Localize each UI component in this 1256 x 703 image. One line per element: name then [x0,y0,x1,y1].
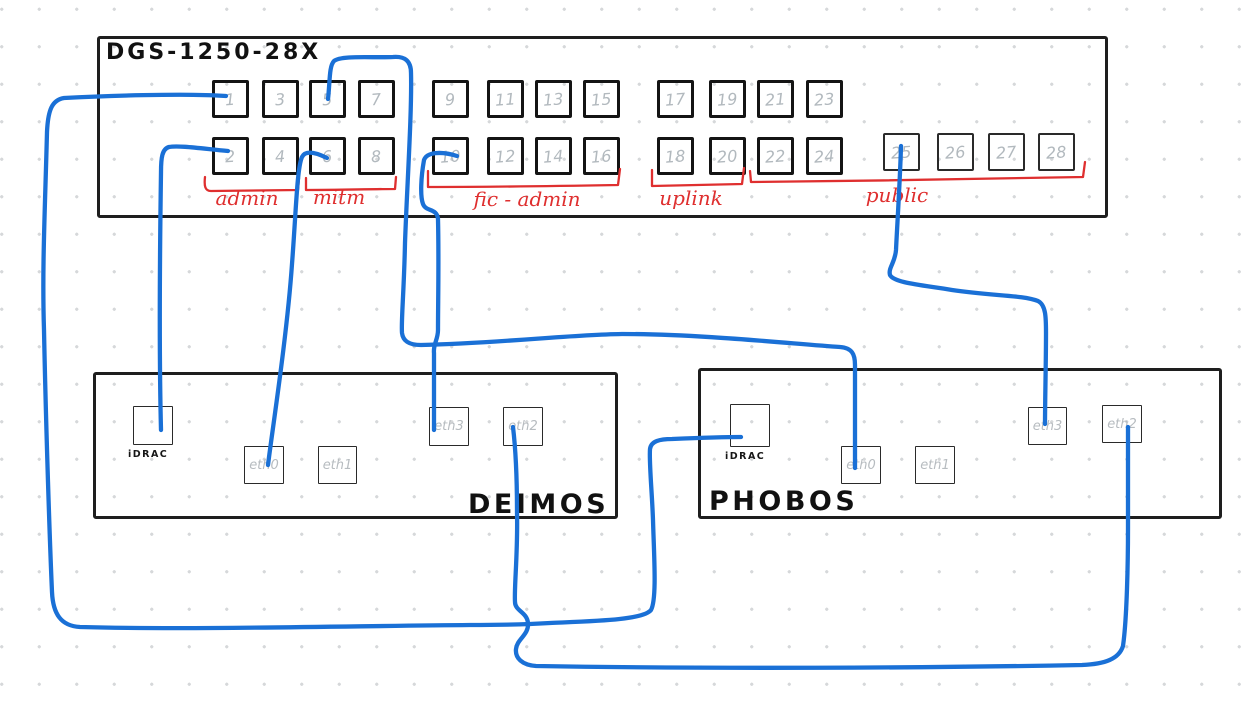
phobos-port-eth1: eth1 [915,446,955,484]
switch-port-6: 6 [309,137,346,175]
switch-port-number: 18 [665,146,687,166]
nic-label: eth1 [323,458,353,473]
switch-port-number: 9 [445,89,456,109]
deimos-port-idrac [133,406,173,445]
switch-port-18: 18 [657,137,694,175]
switch-port-16: 16 [583,137,620,175]
switch-port-number: 3 [275,89,286,109]
server-phobos: PHOBOS iDRACeth0eth1eth3eth2 [698,368,1222,519]
switch-port-number: 25 [891,142,913,162]
switch-port-17: 17 [657,80,694,118]
switch-port-22: 22 [757,137,794,175]
switch-port-number: 2 [225,146,236,166]
switch-port-number: 12 [495,146,517,166]
nic-label: eth3 [434,419,464,434]
switch-port-number: 27 [996,142,1018,162]
switch-port-number: 28 [1046,142,1068,162]
group-label-mitm: mitm [313,185,365,209]
switch-port-number: 19 [717,89,739,109]
switch-port-8: 8 [358,137,395,175]
switch-port-number: 14 [543,146,565,166]
server-phobos-label: PHOBOS [709,486,858,517]
switch-port-20: 20 [709,137,746,175]
switch-port-number: 1 [225,89,236,109]
switch-port-number: 10 [440,146,462,166]
server-deimos-label: DEIMOS [468,489,609,520]
deimos-port-eth2: eth2 [503,407,543,446]
switch-port-number: 21 [765,89,787,109]
phobos-idrac-label: iDRAC [725,451,765,462]
switch-port-11: 11 [487,80,524,118]
switch-port-26: 26 [937,133,974,171]
nic-label: eth2 [1107,417,1137,432]
diagram-canvas: DGS-1250-28X 123456789101112131415161718… [0,0,1256,703]
switch-port-2: 2 [212,137,249,175]
switch-port-number: 15 [591,89,613,109]
switch-port-3: 3 [262,80,299,118]
switch-port-13: 13 [535,80,572,118]
switch-port-28: 28 [1038,133,1075,171]
switch-port-23: 23 [806,80,843,118]
switch-port-number: 7 [371,89,382,109]
switch-port-10: 10 [432,137,469,175]
phobos-port-idrac [730,404,770,447]
switch-port-number: 11 [495,89,517,109]
nic-label: eth0 [846,458,876,473]
switch-port-12: 12 [487,137,524,175]
switch-port-number: 24 [814,146,836,166]
switch-port-25: 25 [883,133,920,171]
switch-port-7: 7 [358,80,395,118]
phobos-port-eth0: eth0 [841,446,881,484]
switch-port-5: 5 [309,80,346,118]
nic-label: eth1 [920,458,950,473]
switch-port-19: 19 [709,80,746,118]
phobos-port-eth3: eth3 [1028,407,1067,445]
nic-label: eth3 [1033,419,1063,434]
switch-port-number: 5 [322,89,333,109]
deimos-port-eth0: eth0 [244,446,284,484]
deimos-idrac-label: iDRAC [128,449,168,460]
switch-port-15: 15 [583,80,620,118]
group-label-public: public [866,183,928,207]
switch-port-number: 16 [591,146,613,166]
switch-port-number: 8 [371,146,382,166]
deimos-port-eth3: eth3 [429,407,469,446]
switch-title: DGS-1250-28X [106,40,321,65]
switch-port-14: 14 [535,137,572,175]
switch-port-4: 4 [262,137,299,175]
deimos-port-eth1: eth1 [318,446,357,484]
switch-port-number: 23 [814,89,836,109]
phobos-port-eth2: eth2 [1102,405,1142,443]
switch-port-1: 1 [212,80,249,118]
switch-port-number: 13 [543,89,565,109]
nic-label: eth0 [249,458,279,473]
switch-port-number: 22 [765,146,787,166]
server-deimos: DEIMOS iDRACeth0eth1eth3eth2 [93,372,618,519]
group-label-uplink: uplink [659,186,722,210]
switch-port-27: 27 [988,133,1025,171]
switch-port-9: 9 [432,80,469,118]
group-label-fic-admin: fic - admin [474,187,581,211]
switch-port-number: 6 [322,146,333,166]
switch-port-number: 26 [945,142,967,162]
switch-port-number: 20 [717,146,739,166]
switch-port-number: 4 [275,146,286,166]
switch-port-24: 24 [806,137,843,175]
switch-port-21: 21 [757,80,794,118]
nic-label: eth2 [508,419,538,434]
switch-port-number: 17 [665,89,687,109]
group-label-admin: admin [216,186,279,210]
